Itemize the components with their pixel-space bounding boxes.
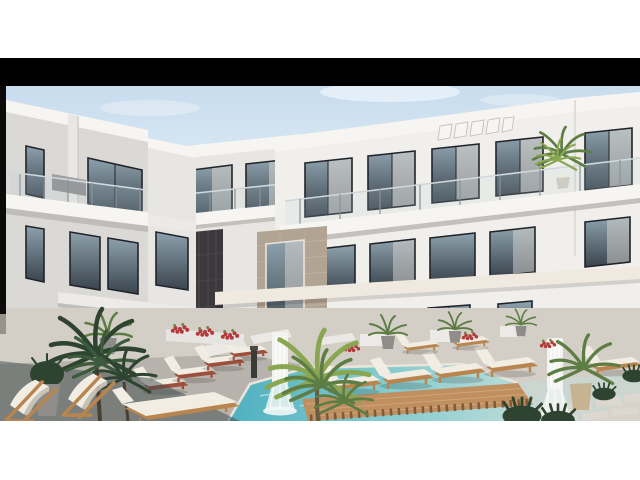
rendering-scene: [0, 86, 640, 421]
photo-frame: [0, 0, 640, 480]
window: [26, 226, 44, 282]
left-edge-strip-fade: [0, 314, 6, 334]
cloud: [100, 100, 200, 116]
window: [430, 233, 475, 283]
bollard-lamp: [250, 346, 258, 378]
left-edge-strip: [0, 86, 6, 314]
window: [156, 232, 188, 290]
window: [108, 238, 138, 294]
matte-bottom: [0, 421, 640, 480]
window: [70, 232, 100, 290]
window: [490, 227, 535, 277]
matte-top: [0, 0, 640, 58]
window: [585, 217, 630, 267]
letterbox-bar: [0, 58, 640, 86]
